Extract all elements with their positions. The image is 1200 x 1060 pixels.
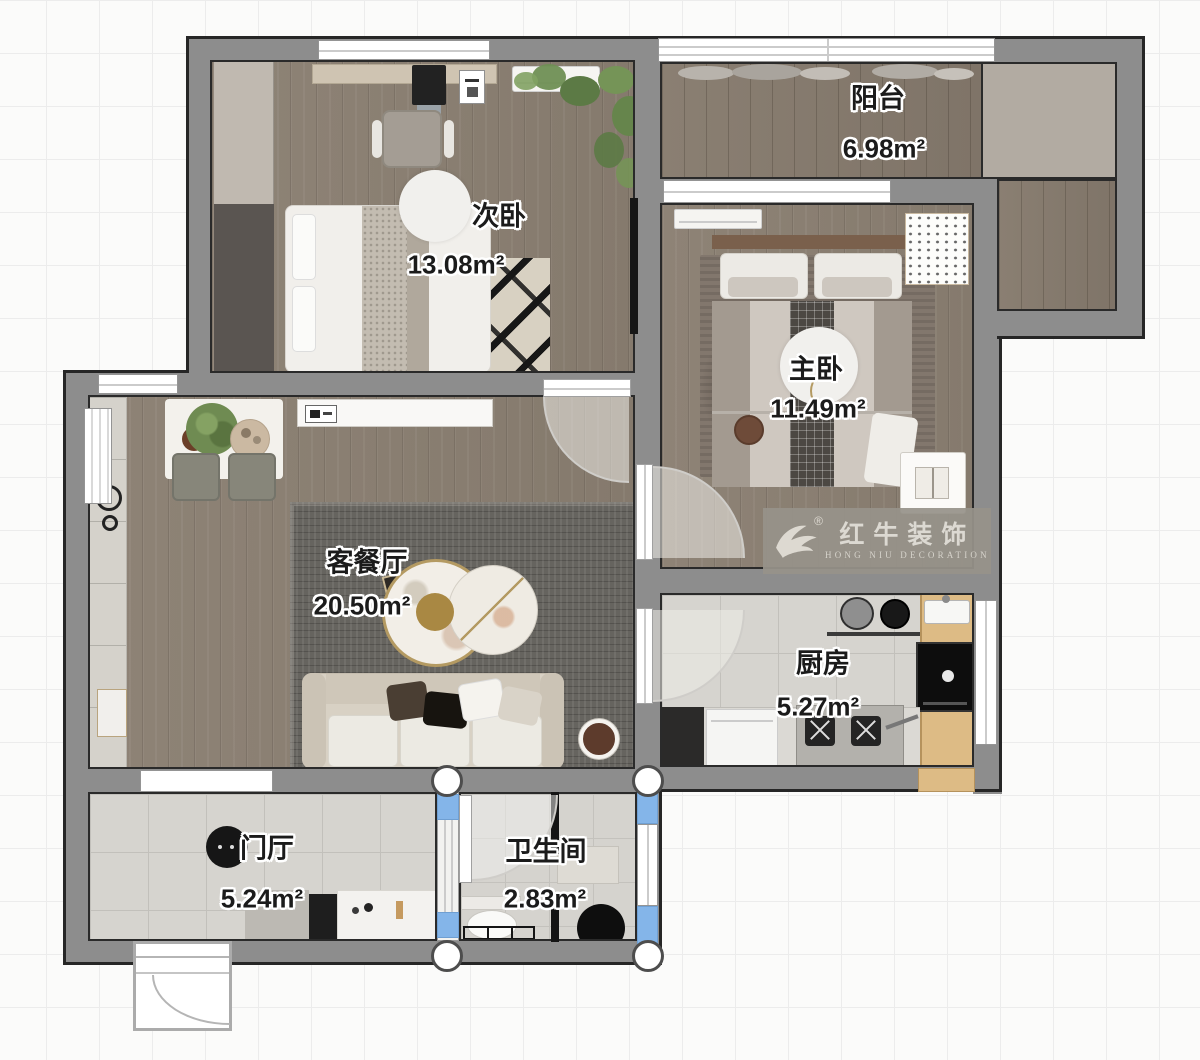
rack-bar [487, 928, 489, 938]
console-frame [305, 405, 337, 423]
appliance-shelf [827, 632, 932, 636]
tall-cabinet [309, 894, 337, 941]
leaf-cluster [598, 66, 634, 94]
window-line [985, 601, 987, 744]
window-bath [637, 824, 658, 906]
frame-mark [310, 410, 320, 418]
leaf-cluster [560, 76, 600, 106]
room-label-bathroom: 卫生间 [506, 830, 587, 869]
dining-plant [186, 403, 238, 455]
window-balcony [658, 38, 995, 62]
outline-bath-right [659, 789, 662, 965]
sofa-arm [540, 673, 564, 769]
brand-logo: ® [771, 514, 825, 568]
pillow-small [822, 277, 892, 297]
pillar [632, 765, 664, 797]
sofa-arm [302, 673, 326, 769]
table-dish [241, 428, 251, 438]
window-kitchen [975, 600, 997, 745]
book [915, 467, 949, 499]
sink [924, 600, 970, 624]
balcony-clutter [800, 67, 850, 80]
counter-wood-stub [918, 768, 975, 792]
window-sill-master [663, 180, 891, 203]
built-in-oven [916, 642, 974, 712]
wardrobe [214, 204, 274, 373]
outline-secondary-left [186, 36, 189, 373]
leaf-cluster [514, 72, 538, 90]
oven-knob [942, 670, 954, 682]
room-area-secondary-bedroom: 13.08m² [408, 250, 505, 281]
window-line [319, 50, 489, 52]
room-label-master-bedroom: 主卧 [789, 348, 843, 387]
round-stool [734, 415, 764, 445]
deco-dot [352, 907, 359, 914]
monitor [412, 65, 446, 105]
figurine [396, 901, 403, 919]
pillar [431, 765, 463, 797]
dishwasher [706, 709, 778, 767]
pillow-small [728, 277, 798, 297]
leaf-cluster [616, 158, 635, 188]
wall-secondary-left [186, 36, 212, 377]
watermark: ® 红牛装饰 HONG NIU DECORATION [763, 508, 991, 574]
pass-through-living-entry [140, 770, 273, 792]
radiator [84, 408, 112, 504]
room-label-secondary-bedroom: 次卧 [472, 195, 526, 234]
art-mark [465, 79, 479, 82]
door-leaf-master-bedroom [636, 464, 653, 560]
room-area-living-dining: 20.50m² [314, 591, 411, 622]
window-line [99, 384, 177, 386]
coffee-table-center [416, 593, 454, 631]
window-living-small [98, 374, 178, 394]
room-label-balcony: 阳台 [851, 77, 905, 116]
outline-ext-bottom [997, 336, 1145, 339]
coffee-table-small [448, 565, 538, 655]
wall-ext-bottom [997, 310, 1143, 337]
window-mullion [827, 39, 829, 61]
side-table [579, 719, 619, 759]
room-living-dining-floor [88, 395, 635, 769]
room-balcony-floor [660, 62, 983, 179]
console-cabinet [297, 399, 493, 427]
rack-bar [511, 928, 513, 938]
desk-chair [382, 110, 442, 168]
ceiling-lamp [399, 170, 471, 242]
balcony-clutter [934, 68, 974, 80]
room-label-living-dining: 客餐厅 [327, 541, 408, 580]
balcony-clutter [732, 64, 802, 80]
shower-door-leaf [459, 795, 472, 883]
shoe-cabinet [337, 890, 437, 941]
lamp-dot [230, 845, 234, 849]
wall-ext-right [1115, 36, 1143, 337]
shoe-cabinet-small [97, 689, 127, 737]
registered-mark: ® [814, 514, 823, 528]
room-area-kitchen: 5.27m² [777, 692, 859, 723]
window-line [647, 825, 649, 905]
art-panel [905, 213, 969, 285]
faucet [942, 595, 950, 603]
pillow [292, 286, 316, 352]
window-line [664, 191, 890, 193]
seat-cushion [328, 715, 398, 767]
dishwasher-line [711, 720, 773, 722]
room-label-kitchen: 厨房 [796, 642, 850, 681]
pillar [632, 940, 664, 972]
room-label-entry-hall: 门厅 [240, 827, 294, 866]
outline-left [63, 370, 66, 965]
pillow [292, 214, 316, 280]
room-area-balcony: 6.98m² [843, 134, 925, 165]
brand-name-cn: 红牛装饰 [825, 522, 990, 550]
nightstand [900, 452, 966, 514]
door-line [544, 388, 630, 390]
outline-living-top-left [63, 370, 189, 373]
ext-storage-area [983, 62, 1117, 179]
book-spine [932, 468, 934, 498]
door-leaf-secondary-bedroom [543, 379, 631, 397]
frame-mark [323, 412, 332, 415]
ac-unit [674, 209, 762, 229]
ext-wood-area [997, 179, 1117, 311]
outline-ext-right [1142, 36, 1145, 339]
room-area-entry-hall: 5.24m² [221, 884, 303, 915]
art-mark [467, 87, 478, 97]
ac-grille [679, 221, 757, 223]
table-dish [253, 436, 261, 444]
bed-headboard [712, 235, 912, 249]
outline-right-mid [999, 336, 1002, 792]
dining-chair [172, 453, 220, 501]
deco-dot [364, 903, 373, 912]
kettle [880, 599, 910, 629]
room-area-bathroom: 2.83m² [504, 884, 586, 915]
entry-door-slab [136, 956, 229, 958]
hose-coil [102, 515, 118, 531]
sliding-door-track [630, 198, 638, 334]
leaf-cluster [612, 96, 635, 136]
pillar [431, 940, 463, 972]
closet [214, 62, 274, 204]
dining-chair [228, 453, 276, 501]
door-line [644, 465, 646, 559]
floor-plan: 次卧 13.08m² 阳台 6.98m² 主卧 11.49m² 客餐厅 20.5… [0, 0, 1200, 1060]
room-entry-hall-floor [88, 792, 437, 941]
wall-art-frame [459, 70, 485, 104]
room-secondary-bedroom-floor [210, 60, 635, 373]
chair-arm-right [444, 120, 454, 158]
partition-glass-blue [437, 794, 459, 820]
plant-vines [512, 62, 635, 197]
lamp-dot [218, 845, 222, 849]
dark-cabinet [662, 707, 704, 767]
towel-rack [463, 926, 535, 940]
door-leaf-kitchen [636, 608, 653, 704]
brand-name-en: HONG NIU DECORATION [825, 550, 990, 560]
rice-cooker [840, 597, 874, 630]
partition-glass-blue [437, 912, 459, 938]
oven-handle [923, 702, 967, 705]
entry-door-slab [136, 972, 229, 974]
window-secondary-bedroom [318, 40, 490, 60]
balcony-clutter [678, 66, 734, 80]
chair-arm-left [372, 120, 382, 158]
room-area-master-bedroom: 11.49m² [770, 394, 865, 425]
blanket-band [712, 301, 750, 487]
blanket-band [362, 206, 407, 372]
door-line [644, 609, 646, 703]
